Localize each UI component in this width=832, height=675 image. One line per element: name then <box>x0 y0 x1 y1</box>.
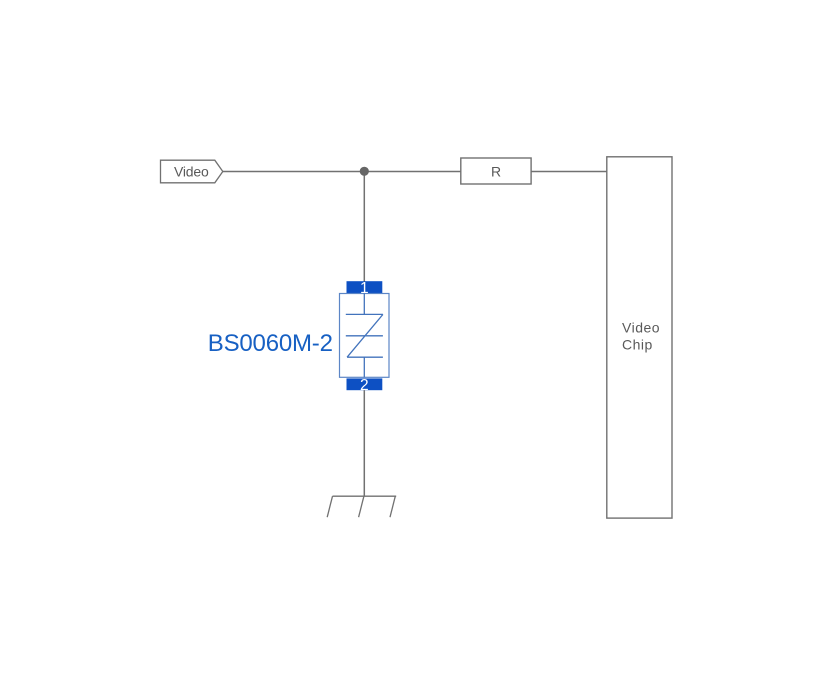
svg-text:Video: Video <box>174 164 209 180</box>
svg-text:Chip: Chip <box>622 337 653 353</box>
svg-text:BS0060M-2: BS0060M-2 <box>208 330 333 357</box>
svg-text:1: 1 <box>360 280 369 297</box>
svg-text:Video: Video <box>622 320 660 336</box>
svg-text:R: R <box>491 164 501 180</box>
